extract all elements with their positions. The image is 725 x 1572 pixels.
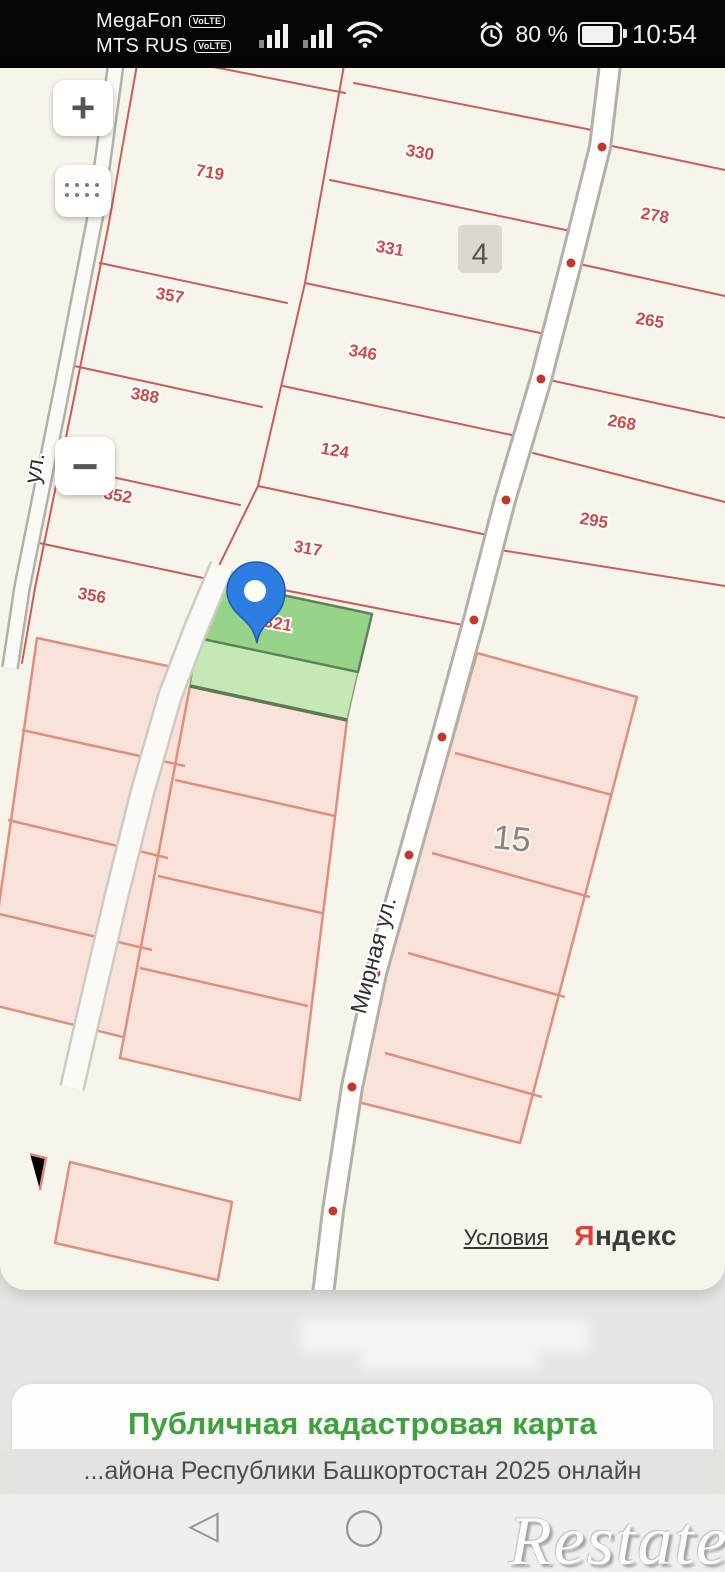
cadastral-map[interactable]: 4 719 330 331 278 357 346 265 388 124 26… (0, 68, 725, 1290)
carrier-primary: MegaFon (96, 10, 183, 33)
zoom-in-button[interactable]: + (53, 80, 113, 136)
block-label: 15 (491, 818, 533, 860)
parcel-label[interactable]: 356 (76, 584, 107, 608)
yandex-logo-initial: Я (574, 1220, 595, 1251)
parcel-label[interactable]: 388 (129, 384, 160, 408)
watermark-blur (300, 1318, 590, 1352)
parcel-label[interactable]: 357 (154, 284, 185, 308)
quarter-marker: 4 (458, 225, 502, 273)
clock: 10:54 (632, 19, 697, 50)
road-left (10, 68, 118, 668)
watermark-blur (360, 1350, 540, 1370)
parcel-label[interactable]: 331 (374, 237, 405, 261)
carrier-secondary: MTS RUS (96, 35, 188, 58)
parcel-boundaries (22, 68, 725, 663)
parcel-label[interactable]: 295 (578, 509, 609, 533)
zoom-in-glyph: + (71, 84, 96, 132)
signal-bars-icon (303, 22, 337, 48)
terms-link[interactable]: Условия (464, 1225, 549, 1251)
nav-back-icon[interactable]: ◁ (188, 1502, 219, 1548)
status-bar: MegaFon VoLTE MTS RUS VoLTE (0, 0, 725, 68)
volte-badge: VoLTE (194, 40, 231, 53)
ticker-text: ...айона Республики Башкортостан 2025 он… (84, 1457, 642, 1486)
ruler-dots-icon (65, 183, 102, 200)
measure-button[interactable] (55, 165, 111, 217)
parcel-label[interactable]: 265 (634, 309, 665, 333)
parcel-label[interactable]: 268 (606, 411, 637, 435)
zoom-out-glyph: − (72, 439, 99, 493)
wifi-icon (347, 20, 383, 48)
street-label-left: ул. (19, 451, 50, 486)
parcel-label[interactable]: 124 (319, 439, 351, 463)
parcel-label[interactable]: 317 (292, 537, 323, 561)
battery-icon (578, 22, 622, 47)
battery-percent: 80 % (515, 21, 567, 48)
volte-badge: VoLTE (189, 15, 226, 28)
zoom-out-button[interactable]: − (55, 437, 115, 495)
page-heading: Публичная кадастровая карта (12, 1406, 713, 1442)
signal-bars-icon (259, 22, 293, 48)
parcel-label[interactable]: 330 (404, 141, 435, 165)
restate-watermark: Restate (509, 1502, 725, 1572)
parcel-label[interactable]: 278 (639, 204, 670, 228)
alarm-icon (478, 21, 505, 48)
ticker-bar: ...айона Республики Башкортостан 2025 он… (0, 1449, 725, 1494)
phone-screen: MegaFon VoLTE MTS RUS VoLTE (0, 0, 725, 1572)
nav-home-icon[interactable]: ◯ (344, 1506, 384, 1547)
parcel-label[interactable]: 346 (347, 341, 378, 365)
yandex-logo-rest: ндекс (595, 1220, 677, 1251)
quarter-marker-label: 4 (472, 238, 489, 271)
yandex-logo[interactable]: Яндекс (574, 1220, 677, 1252)
map-canvas: 4 719 330 331 278 357 346 265 388 124 26… (0, 68, 725, 1290)
map-attribution: Условия Яндекс (464, 1220, 677, 1252)
parcel-label[interactable]: 719 (194, 161, 225, 185)
